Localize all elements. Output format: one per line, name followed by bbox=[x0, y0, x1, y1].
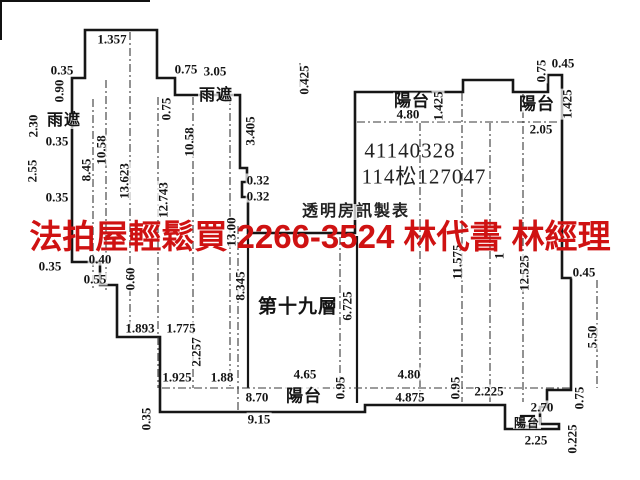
dimension-label: 0.45 bbox=[551, 57, 576, 70]
property-id-label: 114松127047 bbox=[361, 167, 488, 188]
dimension-label: 13.623 bbox=[118, 162, 131, 200]
dimension-label: 1.775 bbox=[165, 322, 196, 335]
dimension-label: 0.32 bbox=[246, 190, 271, 203]
dimension-label: 4.65 bbox=[293, 368, 318, 381]
watermark-text: 法拍屋輕鬆買 2266-3524 林代書 林經理 bbox=[0, 219, 640, 255]
room-label: 雨遮 bbox=[46, 113, 82, 129]
dimension-label: 8.345 bbox=[234, 270, 247, 301]
dimension-label: 5.50 bbox=[586, 325, 599, 350]
dimension-label: 2.55 bbox=[26, 159, 39, 184]
dimension-label: 1.893 bbox=[124, 322, 155, 335]
room-label: 陽台 bbox=[285, 388, 323, 405]
dimension-label: 2.257 bbox=[190, 336, 203, 367]
dimension-label: 2.25 bbox=[524, 434, 549, 447]
dimension-label: 0.95 bbox=[334, 376, 347, 401]
dimension-label: 0.75 bbox=[573, 386, 586, 411]
dimension-label: 0.75 bbox=[174, 63, 199, 76]
dimension-label: 0.90 bbox=[53, 79, 66, 104]
dimension-label: 0.45 bbox=[572, 266, 597, 279]
dimension-label: 0.75 bbox=[535, 59, 548, 84]
dimension-label: 12.743 bbox=[157, 181, 170, 219]
dimension-label: 10.58 bbox=[183, 126, 196, 157]
dimension-label: 2.225 bbox=[473, 385, 504, 398]
dimension-label: 1.88 bbox=[210, 371, 235, 384]
floor-plan-canvas: 1.3570.350.900.753.05雨遮0.4250.75雨遮2.300.… bbox=[0, 0, 640, 480]
dimension-label: 2.70 bbox=[530, 401, 555, 414]
dimension-label: 0.35 bbox=[45, 135, 70, 148]
dimension-label: 8.70 bbox=[245, 391, 270, 404]
room-label: 第十九層 bbox=[257, 298, 339, 317]
dimension-label: 0.95 bbox=[449, 376, 462, 401]
dimension-label: 0.35 bbox=[38, 260, 63, 273]
dimension-label: 0.35 bbox=[50, 64, 75, 77]
dimension-label: 8.45 bbox=[80, 158, 93, 183]
room-label: 雨遮 bbox=[198, 88, 234, 104]
dimension-label: 9.15 bbox=[247, 413, 272, 426]
dimension-label: 4.80 bbox=[397, 368, 422, 381]
property-id-label: 41140328 bbox=[363, 141, 456, 162]
dimension-label: 0.425 bbox=[298, 64, 311, 95]
dimension-label: 3.05 bbox=[203, 65, 228, 78]
dimension-label: 0.35 bbox=[140, 407, 153, 432]
dimension-label: 1.425 bbox=[561, 88, 574, 119]
dimension-label: 10.58 bbox=[95, 134, 108, 165]
dimension-label: 2.30 bbox=[27, 114, 40, 139]
dimension-label: 0.55 bbox=[83, 273, 108, 286]
room-label: 陽台 bbox=[513, 417, 541, 429]
dimension-label: 4.875 bbox=[394, 391, 425, 404]
dimension-label: 12.525 bbox=[518, 254, 531, 292]
dimension-label: 4.80 bbox=[396, 108, 421, 121]
dimension-label: 2.05 bbox=[529, 123, 554, 136]
dimension-label: 0.75 bbox=[160, 97, 173, 122]
dimension-label: 6.725 bbox=[341, 290, 354, 321]
dimension-label: 3.405 bbox=[244, 115, 257, 146]
room-label: 陽台 bbox=[518, 96, 556, 113]
dimension-label: 1.925 bbox=[161, 371, 192, 384]
dimension-label: 0.35 bbox=[45, 191, 70, 204]
dimension-label: 0.225 bbox=[566, 423, 579, 454]
dimension-label: 1.425 bbox=[432, 90, 445, 121]
dimension-label: 1.357 bbox=[96, 33, 127, 46]
dimension-label: 0.60 bbox=[124, 267, 137, 292]
dimension-label: 0.32 bbox=[246, 174, 271, 187]
